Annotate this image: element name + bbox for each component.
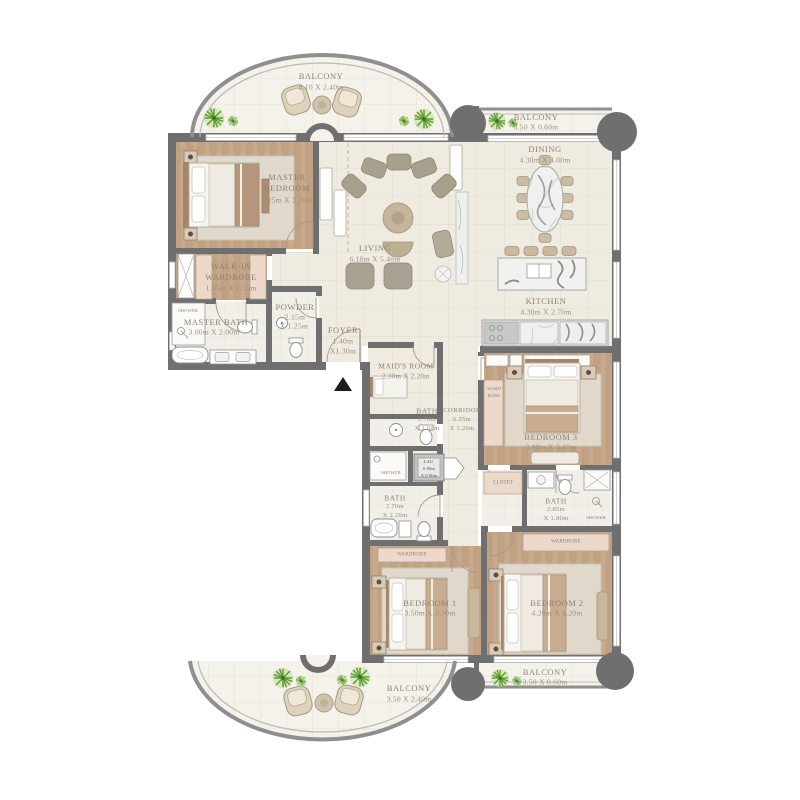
floor-plan: BALCONY 8.10 X 2.40m BALCONY 3.50 X 0.60… — [0, 0, 800, 800]
plant-icon — [491, 669, 509, 687]
plant-icon — [350, 667, 371, 688]
pillow — [392, 614, 403, 642]
pillow — [192, 167, 205, 193]
sliding-panel — [334, 190, 346, 236]
maid-room — [370, 376, 407, 398]
pillow — [528, 366, 551, 377]
plant-icon — [512, 676, 522, 686]
dining-table — [527, 166, 563, 232]
plant-icon — [337, 675, 348, 686]
bench — [262, 179, 269, 213]
entry-arrow-icon — [334, 377, 352, 391]
column — [451, 667, 485, 701]
bedroom2-wardrobe — [523, 534, 609, 551]
plant-icon — [488, 112, 506, 130]
pillow — [554, 366, 577, 377]
toilet — [289, 338, 303, 358]
bathtub — [172, 347, 208, 363]
floor-plan-drawing — [0, 0, 800, 800]
plant-icon — [414, 109, 435, 130]
column — [450, 105, 486, 141]
bedroom3-wardrobe — [484, 380, 503, 446]
bedroom1-wardrobe — [378, 548, 446, 562]
armchair — [346, 263, 374, 289]
shower-stall — [172, 303, 205, 345]
plant-icon — [204, 108, 225, 129]
sliding-panel — [320, 168, 332, 220]
bench — [531, 452, 579, 464]
sink — [399, 521, 411, 537]
toilet — [417, 522, 431, 542]
chaise — [597, 592, 608, 640]
pillow — [507, 580, 518, 610]
plant-icon — [273, 668, 294, 689]
toilet — [238, 320, 258, 334]
toilet — [419, 425, 433, 445]
armchair — [384, 263, 412, 289]
chaise — [468, 588, 480, 638]
column — [596, 652, 634, 690]
plant-icon — [399, 116, 410, 127]
stove — [484, 322, 518, 344]
plant-icon — [508, 118, 518, 128]
toilet — [558, 475, 572, 495]
pillow — [507, 613, 518, 643]
pillow — [192, 196, 205, 222]
master-bed — [183, 151, 269, 240]
pillow — [392, 583, 403, 611]
plant-icon — [228, 116, 239, 127]
column — [597, 112, 637, 152]
closet3 — [484, 472, 522, 494]
plant-icon — [296, 676, 307, 687]
